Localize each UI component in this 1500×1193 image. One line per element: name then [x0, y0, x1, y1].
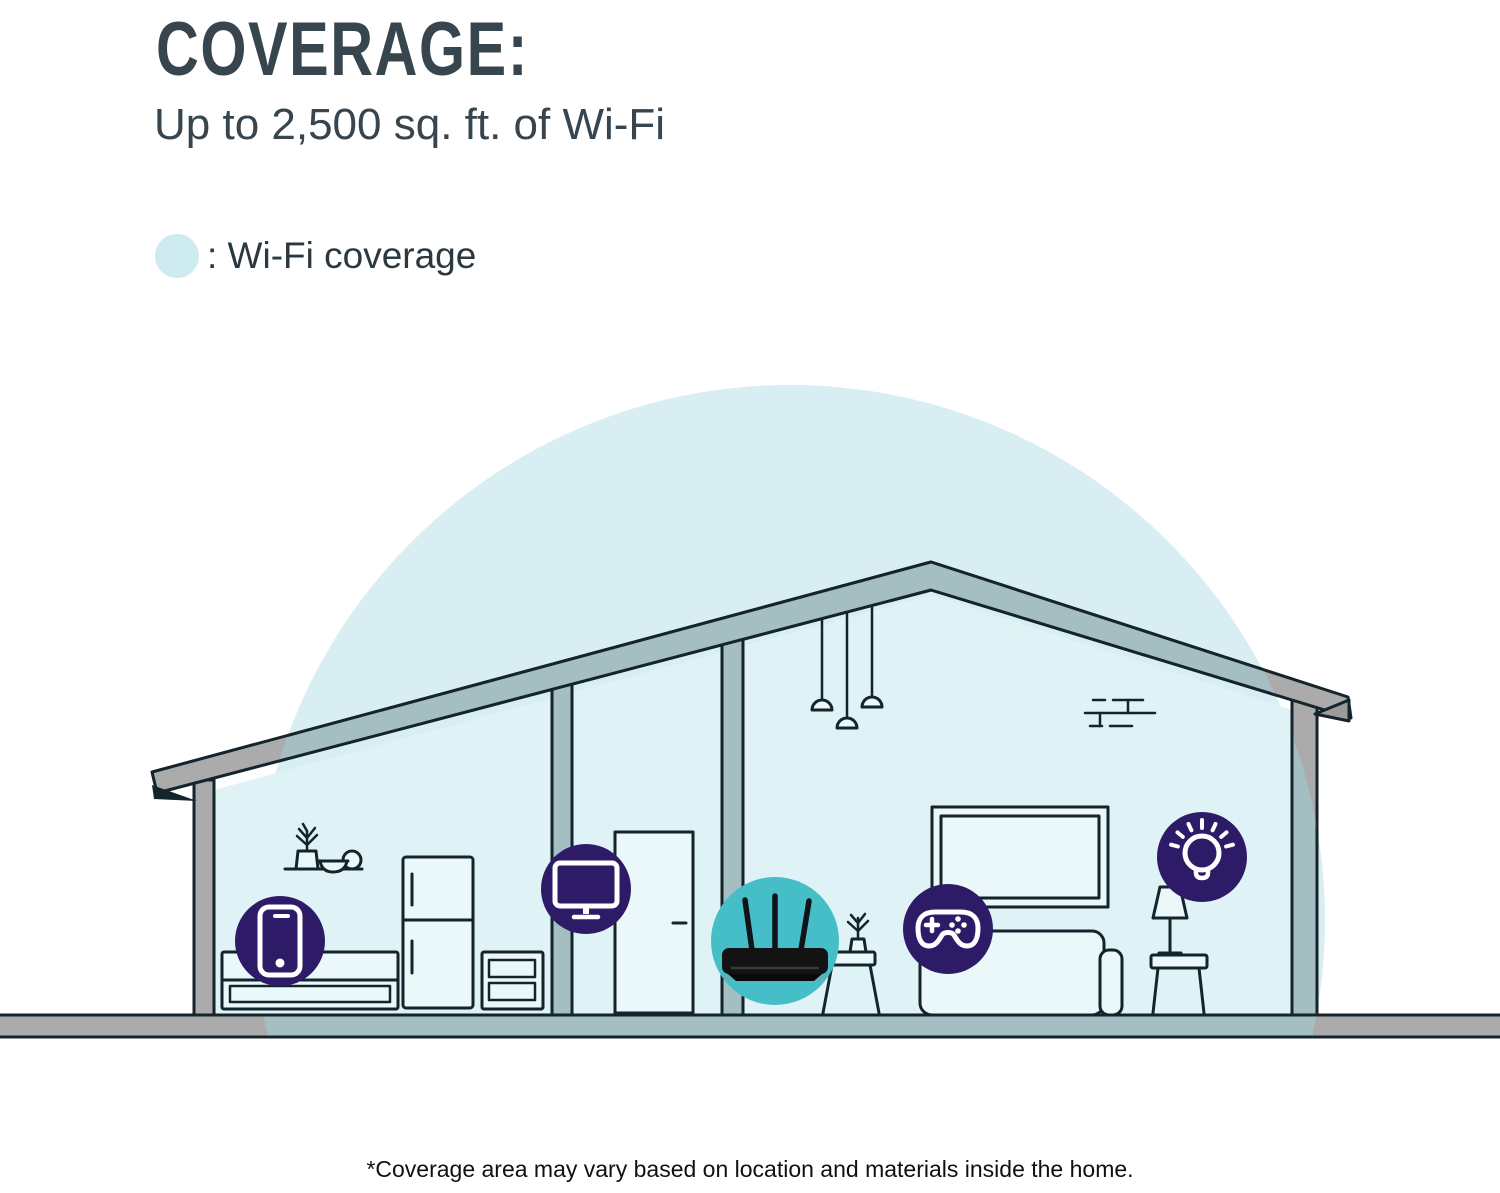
router-base [728, 974, 822, 981]
coverage-infographic: COVERAGE: Up to 2,500 sq. ft. of Wi-Fi :… [0, 0, 1500, 1193]
game-controller-icon [903, 884, 993, 974]
door [615, 832, 693, 1013]
wifi-coverage-dot [155, 234, 199, 278]
page-subtitle: Up to 2,500 sq. ft. of Wi-Fi [154, 100, 665, 150]
smart-bulb-icon [1157, 812, 1247, 902]
refrigerator [403, 857, 473, 1008]
router-body [722, 948, 828, 974]
house-illustration [0, 0, 1500, 1193]
legend: : Wi-Fi coverage [155, 234, 476, 278]
sofa-armrest [1100, 950, 1122, 1015]
plant-pot [296, 851, 318, 869]
page-title: COVERAGE: [156, 6, 529, 93]
legend-label: : Wi-Fi coverage [207, 235, 476, 277]
bowl [320, 861, 347, 872]
wifi-router [711, 877, 839, 1005]
tv-icon [541, 844, 631, 934]
plant-pot [850, 939, 866, 952]
disclaimer-text: *Coverage area may vary based on locatio… [0, 1156, 1500, 1183]
smartphone-icon [235, 896, 325, 986]
drawer-unit [482, 952, 543, 1009]
